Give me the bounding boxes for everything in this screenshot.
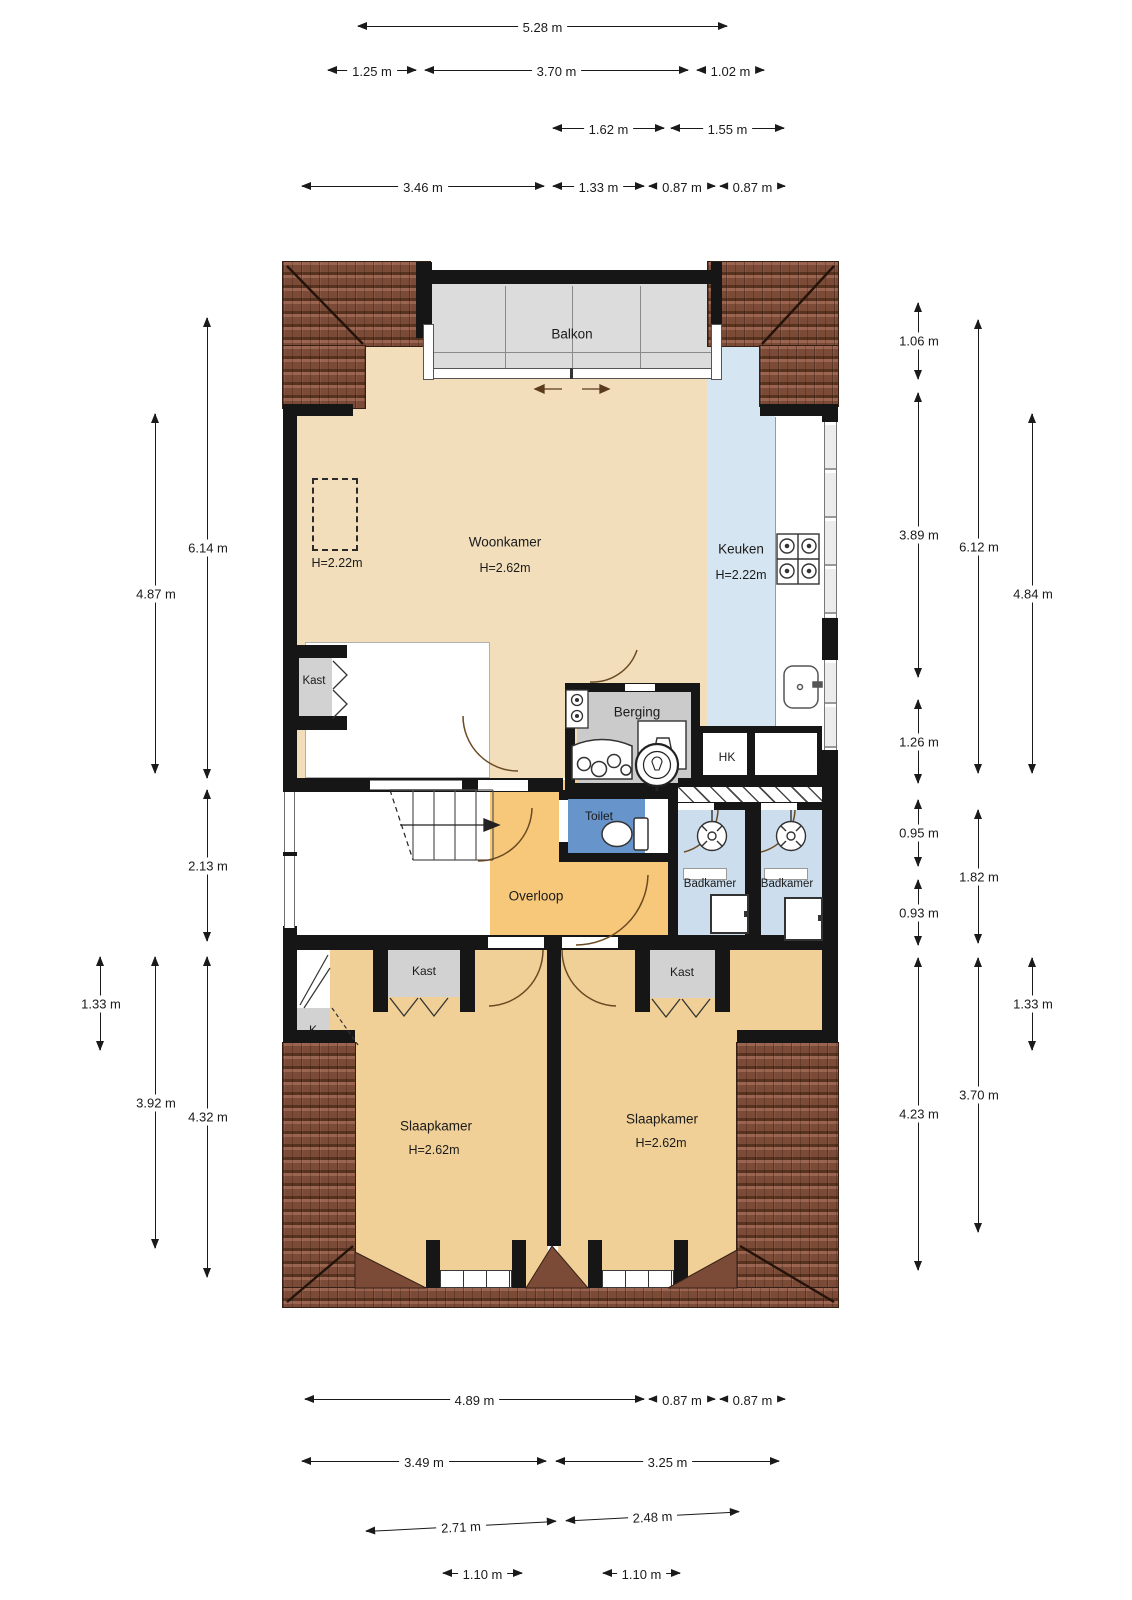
door-gap bbox=[478, 780, 528, 791]
dimension-line-vertical: 1.33 m bbox=[1032, 958, 1033, 1050]
dimension-line-horizontal: 3.70 m bbox=[425, 70, 688, 71]
dimension-label: 4.89 m bbox=[450, 1393, 500, 1408]
room-label-kast-bedroom-right: Kast bbox=[670, 965, 694, 979]
balcony-mullion bbox=[505, 286, 506, 368]
room-label-overloop: Overloop bbox=[509, 889, 564, 904]
dimension-label: 0.87 m bbox=[657, 180, 707, 195]
dimension-label: 0.93 m bbox=[895, 904, 943, 921]
dimension-label: 3.49 m bbox=[399, 1455, 449, 1470]
dimension-label: 1.55 m bbox=[703, 122, 753, 137]
dimension-label: 3.89 m bbox=[895, 527, 943, 544]
dimension-label: 1.82 m bbox=[955, 868, 1003, 885]
dimension-line-horizontal: 0.87 m bbox=[720, 186, 785, 187]
room-label-slaapkamer-right: Slaapkamer bbox=[626, 1112, 698, 1127]
dimension-line-horizontal: 0.87 m bbox=[649, 186, 715, 187]
dimension-line-horizontal: 2.48 m bbox=[566, 1511, 739, 1521]
dimension-line-horizontal: 1.55 m bbox=[671, 128, 784, 129]
wall-segment bbox=[668, 790, 678, 950]
floorplan: Balkon Woonkamer H=2.62m Keuken H=2.22m … bbox=[0, 0, 1132, 1600]
dimension-label: 3.70 m bbox=[955, 1087, 1003, 1104]
wall-badkamer-divider bbox=[745, 810, 761, 950]
room-toilet bbox=[568, 799, 645, 853]
window-stairwell bbox=[284, 792, 295, 928]
wall-berging bbox=[565, 683, 575, 792]
wall-segment bbox=[430, 270, 715, 284]
balcony-jamb bbox=[423, 324, 434, 380]
dimension-label: 1.25 m bbox=[347, 64, 397, 79]
door-gap bbox=[562, 937, 618, 948]
dimension-line-horizontal: 0.87 m bbox=[720, 1399, 785, 1400]
dimension-line-vertical: 6.12 m bbox=[978, 320, 979, 773]
window-pier bbox=[674, 1240, 688, 1288]
dimension-line-horizontal: 1.62 m bbox=[553, 128, 664, 129]
dimension-label: 3.70 m bbox=[532, 64, 582, 79]
room-label-badkamer-right: Badkamer bbox=[761, 878, 813, 890]
dimension-line-vertical: 3.92 m bbox=[155, 957, 156, 1248]
floor-slaapkamer-right bbox=[558, 1045, 737, 1288]
door-gap bbox=[625, 684, 655, 691]
dimension-line-vertical: 4.32 m bbox=[207, 957, 208, 1277]
wall-center-bedrooms bbox=[547, 935, 561, 1246]
k-hatch-area bbox=[297, 950, 330, 1008]
dimension-line-vertical: 1.33 m bbox=[100, 957, 101, 1050]
window-kitchen bbox=[824, 422, 837, 618]
dimension-line-vertical: 3.89 m bbox=[918, 393, 919, 677]
ceiling-height-zone bbox=[312, 478, 358, 551]
window-pier bbox=[512, 1240, 526, 1288]
door-gap bbox=[488, 937, 544, 948]
dimension-label: 6.14 m bbox=[184, 540, 232, 557]
dimension-line-horizontal: 1.10 m bbox=[603, 1573, 680, 1574]
wall-segment bbox=[760, 404, 838, 416]
dimension-label: 2.71 m bbox=[436, 1518, 486, 1536]
dimension-label: 0.87 m bbox=[728, 1393, 778, 1408]
dimension-label: 2.13 m bbox=[184, 857, 232, 874]
wall-toilet bbox=[559, 790, 678, 799]
window-sill bbox=[283, 852, 297, 856]
room-height-slaapkamer-left: H=2.62m bbox=[408, 1143, 459, 1157]
door-gap bbox=[678, 803, 714, 810]
room-label-badkamer-left: Badkamer bbox=[684, 878, 736, 890]
dimension-line-horizontal: 1.25 m bbox=[328, 70, 416, 71]
dimension-label: 4.84 m bbox=[1009, 585, 1057, 602]
closet-kast-wall bbox=[299, 658, 332, 716]
room-label-slaapkamer-left: Slaapkamer bbox=[400, 1119, 472, 1134]
window-pier bbox=[588, 1240, 602, 1288]
balcony-mullion bbox=[640, 286, 641, 368]
dimension-line-vertical: 6.14 m bbox=[207, 318, 208, 778]
dimension-line-horizontal: 5.28 m bbox=[358, 26, 727, 27]
wall-exterior-right bbox=[822, 750, 838, 950]
room-label-k: K bbox=[309, 1023, 317, 1037]
dimension-line-vertical: 4.87 m bbox=[155, 414, 156, 773]
room-label-balkon: Balkon bbox=[551, 327, 592, 342]
dimension-line-vertical: 4.23 m bbox=[918, 958, 919, 1270]
balcony-jamb bbox=[711, 324, 722, 380]
door-gap bbox=[761, 803, 797, 810]
dimension-line-vertical: 3.70 m bbox=[978, 958, 979, 1232]
toilet-niche bbox=[645, 799, 668, 853]
dimension-line-vertical: 0.93 m bbox=[918, 880, 919, 945]
dimension-label: 1.02 m bbox=[706, 64, 756, 79]
wall-closet bbox=[715, 950, 730, 1012]
window-dormer-left bbox=[440, 1270, 512, 1288]
dimension-label: 1.33 m bbox=[574, 180, 624, 195]
room-label-keuken: Keuken bbox=[718, 542, 764, 557]
room-label-woonkamer: Woonkamer bbox=[469, 535, 542, 550]
void-area bbox=[305, 642, 490, 778]
window-kitchen bbox=[824, 660, 837, 750]
balcony-door-divider bbox=[570, 368, 573, 379]
dimension-line-vertical: 1.06 m bbox=[918, 303, 919, 379]
room-label-berging: Berging bbox=[614, 705, 661, 720]
window-dormer-right bbox=[602, 1270, 674, 1288]
dimension-line-horizontal: 1.02 m bbox=[697, 70, 764, 71]
dimension-label: 2.48 m bbox=[627, 1508, 677, 1526]
kitchen-counter bbox=[775, 417, 822, 731]
dimension-line-horizontal: 3.46 m bbox=[302, 186, 544, 187]
dimension-line-horizontal: 3.49 m bbox=[302, 1461, 546, 1462]
wall-exterior-right bbox=[822, 950, 838, 1043]
roof-top-left bbox=[283, 262, 430, 346]
room-height-keuken: H=2.22m bbox=[715, 568, 766, 582]
dimension-label: 1.06 m bbox=[895, 333, 943, 350]
room-label-hk: HK bbox=[719, 750, 736, 764]
dimension-line-vertical: 0.95 m bbox=[918, 800, 919, 866]
dimension-line-vertical: 1.26 m bbox=[918, 700, 919, 783]
dimension-line-horizontal: 1.10 m bbox=[443, 1573, 522, 1574]
wall-segment bbox=[283, 412, 297, 645]
wall-toilet bbox=[559, 853, 678, 862]
roof-top-right bbox=[708, 262, 838, 346]
dimension-label: 1.10 m bbox=[617, 1567, 667, 1582]
wall-segment bbox=[283, 645, 299, 730]
dimension-label: 1.33 m bbox=[1009, 996, 1057, 1013]
window-pier bbox=[426, 1240, 440, 1288]
dimension-label: 0.95 m bbox=[895, 825, 943, 842]
dimension-label: 1.26 m bbox=[895, 733, 943, 750]
dimension-line-horizontal: 4.89 m bbox=[305, 1399, 644, 1400]
dimension-label: 0.87 m bbox=[657, 1393, 707, 1408]
roof-top-right bbox=[760, 346, 838, 406]
dimension-line-horizontal: 1.33 m bbox=[553, 186, 644, 187]
room-label-kast-bedroom-left: Kast bbox=[412, 964, 436, 978]
roof-top-left bbox=[283, 346, 365, 408]
dimension-label: 3.46 m bbox=[398, 180, 448, 195]
wall-closet bbox=[635, 950, 650, 1012]
dimension-label: 4.23 m bbox=[895, 1106, 943, 1123]
dimension-label: 6.12 m bbox=[955, 538, 1003, 555]
room-compartment bbox=[755, 733, 817, 775]
dimension-line-horizontal: 3.25 m bbox=[556, 1461, 779, 1462]
wall-closet bbox=[373, 950, 388, 1012]
wall-closet bbox=[460, 950, 475, 1012]
balcony-rail-line bbox=[432, 352, 713, 353]
dimension-line-vertical: 1.82 m bbox=[978, 810, 979, 943]
floorplan-canvas: Balkon Woonkamer H=2.62m Keuken H=2.22m … bbox=[0, 0, 1132, 1600]
dimension-label: 4.32 m bbox=[184, 1109, 232, 1126]
dimension-label: 1.62 m bbox=[584, 122, 634, 137]
dimension-label: 0.87 m bbox=[728, 180, 778, 195]
ceiling-zone-label: H=2.22m bbox=[311, 556, 362, 570]
room-height-woonkamer: H=2.62m bbox=[479, 561, 530, 575]
room-label-kast: Kast bbox=[302, 675, 325, 687]
roof-bottom-left bbox=[283, 1043, 355, 1307]
wall-segment bbox=[283, 730, 297, 792]
room-label-toilet: Toilet bbox=[585, 809, 613, 823]
dimension-line-horizontal: 0.87 m bbox=[649, 1399, 715, 1400]
roof-bottom-right bbox=[737, 1043, 838, 1307]
dimension-label: 3.92 m bbox=[132, 1094, 180, 1111]
dimension-line-vertical: 4.84 m bbox=[1032, 414, 1033, 773]
dimension-line-vertical: 2.13 m bbox=[207, 790, 208, 941]
dimension-label: 3.25 m bbox=[643, 1455, 693, 1470]
wall-segment bbox=[283, 1030, 355, 1043]
stairwell-area bbox=[297, 792, 490, 935]
dimension-line-horizontal: 2.71 m bbox=[366, 1521, 556, 1532]
roof-bottom-band bbox=[283, 1288, 838, 1307]
dimension-label: 4.87 m bbox=[132, 585, 180, 602]
void-hatched-strip bbox=[678, 787, 822, 802]
dimension-label: 5.28 m bbox=[518, 20, 568, 35]
dimension-label: 1.33 m bbox=[77, 995, 125, 1012]
room-height-slaapkamer-right: H=2.62m bbox=[635, 1136, 686, 1150]
dimension-label: 1.10 m bbox=[458, 1567, 508, 1582]
glass-partition bbox=[370, 780, 462, 790]
wall-exterior-right bbox=[822, 618, 838, 660]
